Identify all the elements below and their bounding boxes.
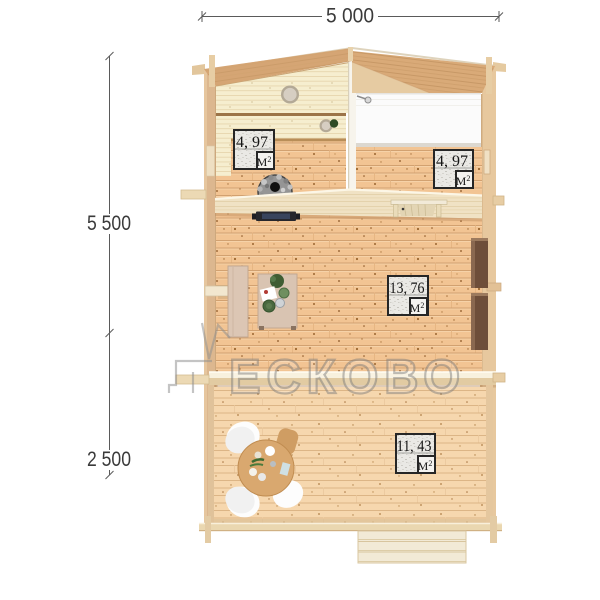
svg-text:13, 76: 13, 76 [390, 280, 425, 297]
svg-text:4, 97: 4, 97 [436, 153, 468, 170]
svg-text:4, 97: 4, 97 [236, 134, 268, 151]
svg-text:5 000: 5 000 [326, 5, 374, 28]
svg-text:2 500: 2 500 [87, 448, 131, 471]
svg-text:ЕСКОВО: ЕСКОВО [229, 351, 466, 404]
svg-text:5 500: 5 500 [87, 212, 131, 235]
svg-text:11, 43: 11, 43 [397, 438, 432, 455]
